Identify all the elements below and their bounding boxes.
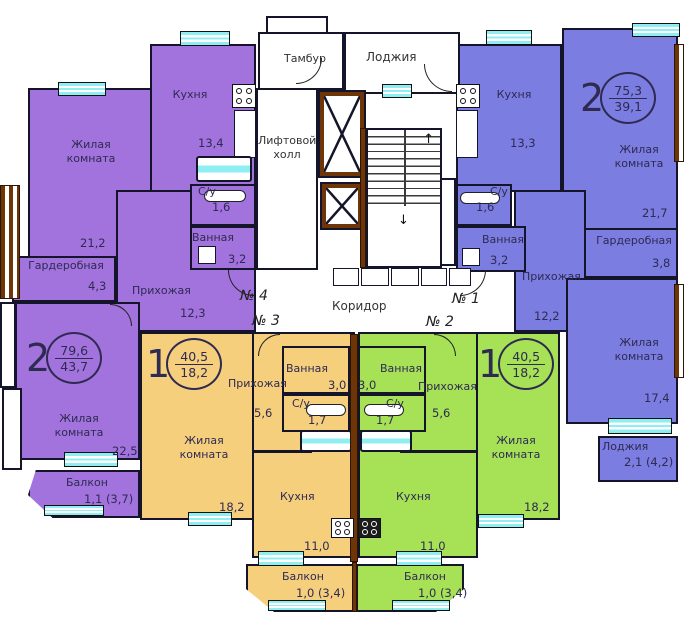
- total-area: 40,5: [507, 349, 545, 365]
- room-label: С/у: [386, 397, 404, 411]
- unit-number-2: № 2: [426, 314, 454, 330]
- room-label-lift-hall: Лифтовой холл: [258, 134, 316, 162]
- living-area: 18,2: [175, 365, 213, 380]
- elevator-x-icon: [326, 188, 358, 224]
- room-area: 5,6: [432, 406, 450, 420]
- window: [268, 600, 326, 611]
- room-area: 1,7: [376, 413, 394, 427]
- room-label: Гардеробная: [24, 259, 108, 273]
- room-label-corridor: Коридор: [332, 299, 387, 314]
- utility-shaft: [361, 268, 389, 286]
- area-circle: 40,5 18,2: [166, 338, 222, 390]
- kitchen-counter: [456, 110, 478, 158]
- room-area: 1,6: [212, 200, 230, 214]
- shower-tray: [462, 248, 480, 266]
- utility-shaft: [421, 268, 447, 286]
- room-label: Жилая комната: [596, 336, 682, 364]
- room-label: Балкон: [282, 570, 324, 584]
- utility-shaft: [333, 268, 359, 286]
- stair-direction-down-icon: ↓: [398, 214, 409, 227]
- room-area: 1,7: [308, 413, 326, 427]
- room-label: Балкон: [66, 476, 108, 490]
- room-area: 3,2: [490, 253, 508, 267]
- total-area: 40,5: [175, 349, 213, 365]
- room-label: Жилая комната: [40, 412, 118, 440]
- unit-number-4: № 4: [240, 288, 268, 304]
- room-label: Жилая комната: [478, 434, 554, 462]
- window: [486, 30, 532, 45]
- room-area: 17,4: [644, 391, 670, 405]
- room-label: Прихожая: [522, 270, 581, 284]
- total-area: 75,3: [609, 83, 647, 99]
- room-lift-hall: [256, 88, 318, 270]
- room-label: С/у: [292, 397, 310, 411]
- room-area: 1,6: [476, 200, 494, 214]
- room-area: 12,2: [534, 309, 560, 323]
- living-area: 43,7: [55, 359, 93, 374]
- balcony-divider-wall: [352, 562, 357, 612]
- elevator-shaft-2: [322, 184, 362, 228]
- room-label: Балкон: [404, 570, 446, 584]
- room-label: Ванная: [286, 362, 328, 376]
- room-area: 21,2: [80, 236, 106, 250]
- room-label: Прихожая: [418, 380, 477, 394]
- room-area: 1,1 (3,7): [84, 492, 133, 506]
- room-area: 3,2: [228, 252, 246, 266]
- area-circle: 40,5 18,2: [498, 338, 554, 390]
- utility-shaft: [391, 268, 419, 286]
- room-label: Жилая комната: [46, 138, 136, 166]
- bathtub: [196, 156, 252, 182]
- room-label: Ванная: [192, 231, 234, 245]
- window: [632, 23, 680, 37]
- area-circle: 79,6 43,7: [46, 332, 102, 384]
- kitchen-counter: [234, 110, 256, 158]
- room-area: 3,0: [328, 378, 346, 392]
- stair-wall: [360, 128, 366, 268]
- floor-plan: ↑ ↓: [0, 0, 684, 623]
- bathtub: [300, 430, 352, 452]
- window: [44, 505, 104, 516]
- room-area: 5,6: [254, 406, 272, 420]
- entrance-canopy: [266, 16, 328, 34]
- window: [64, 452, 118, 467]
- room-label: С/у: [198, 185, 216, 199]
- room-label: Гардеробная: [594, 234, 674, 248]
- room-area: 13,3: [510, 136, 536, 150]
- room-label: Ванная: [380, 362, 422, 376]
- apartment-summary-purple: 2 79,6 43,7: [26, 332, 102, 384]
- window: [478, 514, 524, 528]
- room-area: 18,2: [219, 500, 245, 514]
- room-label: Кухня: [158, 88, 222, 102]
- stove-icon: [456, 84, 480, 108]
- room-area: 1,0 (3,4): [296, 586, 345, 600]
- stove-icon: [358, 518, 381, 538]
- room-area: 1,0 (3,4): [418, 586, 467, 600]
- room-area: 21,7: [642, 206, 668, 220]
- room-area: 3,8: [652, 256, 670, 270]
- room-area: 11,0: [420, 539, 446, 553]
- living-area: 18,2: [507, 365, 545, 380]
- area-circle: 75,3 39,1: [600, 72, 656, 124]
- right-edge-window-frame: [674, 284, 684, 378]
- window: [608, 418, 672, 434]
- apartment-summary-green: 1 40,5 18,2: [478, 338, 554, 390]
- stove-icon: [232, 84, 256, 108]
- window: [382, 84, 412, 98]
- room-label: Лоджия: [602, 440, 648, 454]
- total-area: 79,6: [55, 343, 93, 359]
- left-edge-window-frame: [0, 185, 20, 299]
- room-area: 3,0: [358, 378, 376, 392]
- window: [396, 551, 442, 566]
- room-label: Кухня: [280, 490, 315, 504]
- room-area: 22,5: [112, 444, 138, 458]
- left-edge-frame: [0, 302, 16, 388]
- left-edge-frame: [2, 388, 22, 470]
- shower-tray: [198, 246, 216, 264]
- room-area: 2,1 (4,2): [624, 455, 673, 469]
- room-label: Кухня: [396, 490, 431, 504]
- room-area: 4,3: [88, 279, 106, 293]
- room-area: 11,0: [304, 539, 330, 553]
- bathtub: [360, 430, 412, 452]
- window: [188, 512, 232, 526]
- room-area: 12,3: [180, 306, 206, 320]
- stair-divider: [404, 130, 406, 206]
- room-label-loggia-top: Лоджия: [366, 50, 417, 65]
- apartment-summary-orange: 1 40,5 18,2: [146, 338, 222, 390]
- stair-direction-up-icon: ↑: [423, 133, 434, 146]
- room-label: Кухня: [482, 88, 546, 102]
- room-area: 18,2: [524, 500, 550, 514]
- staircase: ↑ ↓: [366, 128, 442, 268]
- elevator-x-icon: [324, 96, 360, 172]
- room-label: Прихожая: [132, 284, 191, 298]
- elevator-shaft-1: [320, 92, 364, 176]
- unit-number-1: № 1: [452, 291, 480, 307]
- room-label: С/у: [490, 185, 508, 199]
- stove-icon: [331, 518, 354, 538]
- unit-number-3: № 3: [252, 313, 280, 329]
- window: [392, 600, 450, 611]
- living-area: 39,1: [609, 99, 647, 114]
- window: [58, 82, 106, 96]
- apartment-summary-blue: 2 75,3 39,1: [580, 72, 656, 124]
- room-label-tambur: Тамбур: [284, 52, 326, 66]
- room-label: Жилая комната: [166, 434, 242, 462]
- window: [180, 31, 230, 46]
- window: [258, 551, 304, 566]
- room-label: Ванная: [482, 233, 524, 247]
- room-area: 13,4: [198, 136, 224, 150]
- room-label: Прихожая: [228, 377, 287, 391]
- room-label: Жилая комната: [596, 143, 682, 171]
